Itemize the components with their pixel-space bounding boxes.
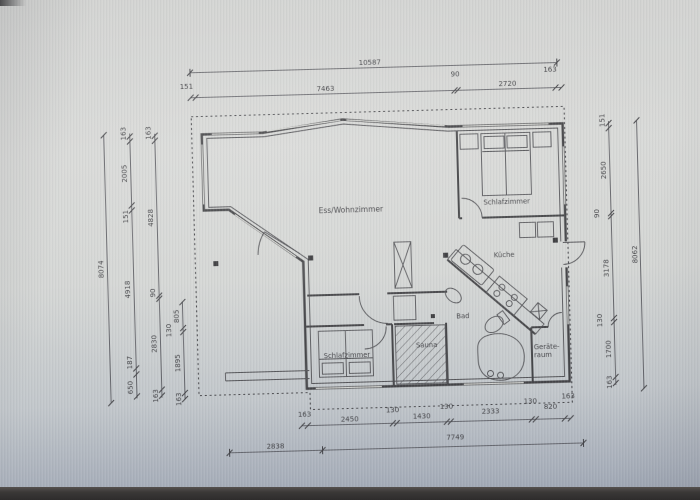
svg-text:805: 805: [173, 309, 181, 323]
dim-left-chain-a: 163 2005 151 4918 187 650: [119, 127, 140, 400]
svg-text:8062: 8062: [631, 245, 639, 263]
terrace-bench: [225, 371, 309, 381]
bedroom-main-furniture: [460, 132, 553, 197]
floor-plan-photo: 10587 151 7463 90 2720 163 8074 163 2005…: [0, 0, 700, 500]
svg-text:7749: 7749: [446, 433, 464, 441]
svg-text:820: 820: [544, 403, 558, 411]
dim-left-chain-b: 163 4828 90 2830 163: [144, 126, 165, 403]
room-label-bedroom-main: Schlafzimmer: [483, 197, 530, 206]
chimney: [394, 242, 412, 288]
svg-text:130: 130: [386, 406, 400, 414]
svg-text:8074: 8074: [97, 260, 106, 279]
svg-text:151: 151: [598, 113, 606, 127]
svg-text:1895: 1895: [174, 354, 182, 372]
sauna-area: [395, 325, 447, 384]
dim-top-total: 10587: [187, 53, 560, 76]
svg-text:2830: 2830: [150, 335, 158, 353]
svg-text:163: 163: [144, 126, 152, 140]
svg-text:90: 90: [451, 70, 460, 78]
svg-text:650: 650: [127, 381, 135, 395]
svg-text:2720: 2720: [498, 80, 516, 88]
room-label-bedroom-small: Schlafzimmer: [324, 351, 371, 360]
svg-text:130: 130: [165, 324, 173, 338]
svg-text:163: 163: [606, 375, 614, 389]
svg-text:130: 130: [596, 314, 604, 328]
room-label-living: Ess/Wohnzimmer: [319, 204, 385, 215]
svg-text:130: 130: [440, 403, 454, 411]
room-label-utility-2: raum: [534, 351, 552, 360]
room-label-bath: Bad: [456, 312, 469, 320]
dim-bottom-chain: 163 2450 130 1430 130 2333 130 820 163: [297, 392, 575, 429]
svg-text:2650: 2650: [600, 161, 608, 179]
svg-text:4828: 4828: [147, 209, 155, 227]
bathroom-fixtures: [442, 283, 525, 382]
svg-text:90: 90: [593, 209, 601, 218]
svg-text:151: 151: [180, 83, 194, 91]
dim-left-chain-c: 805 130 1895 163: [164, 299, 188, 406]
room-label-sauna: Sauna: [416, 341, 437, 350]
dim-top-chain: 151 7463 90 2720 163: [179, 65, 564, 101]
screen-edge-bottom: [0, 487, 700, 500]
svg-text:163: 163: [561, 392, 575, 400]
dim-right-total: 8062: [627, 117, 647, 391]
roof-overhang-outline: [191, 106, 572, 412]
svg-text:163: 163: [298, 411, 312, 419]
svg-text:4918: 4918: [124, 281, 132, 299]
svg-text:130: 130: [523, 397, 537, 405]
floor-plan-drawing: 10587 151 7463 90 2720 163 8074 163 2005…: [0, 0, 700, 500]
exterior-wall: [201, 113, 569, 391]
svg-text:163: 163: [175, 392, 183, 406]
room-label-kitchen: Küche: [494, 251, 515, 260]
svg-text:3178: 3178: [602, 259, 610, 277]
svg-text:2450: 2450: [341, 415, 359, 423]
svg-text:7463: 7463: [316, 85, 334, 93]
svg-text:2333: 2333: [482, 407, 500, 415]
dim-bottom-totals: 2838 7749: [226, 430, 586, 457]
svg-text:151: 151: [122, 210, 130, 224]
dim-left-total: 8074: [94, 132, 115, 406]
shower-closet: [393, 296, 416, 321]
svg-text:10587: 10587: [359, 58, 381, 67]
svg-text:163: 163: [543, 66, 557, 74]
svg-text:2005: 2005: [121, 165, 129, 183]
svg-text:90: 90: [149, 288, 157, 297]
svg-text:163: 163: [119, 127, 127, 141]
svg-text:1430: 1430: [413, 412, 431, 420]
svg-text:187: 187: [126, 356, 134, 370]
svg-text:1700: 1700: [605, 340, 613, 358]
dim-right-chain: 151 2650 90 3178 130 1700 163: [590, 113, 619, 389]
svg-text:163: 163: [152, 389, 160, 403]
svg-text:2838: 2838: [266, 442, 284, 450]
screen-edge-top: [0, 0, 26, 6]
